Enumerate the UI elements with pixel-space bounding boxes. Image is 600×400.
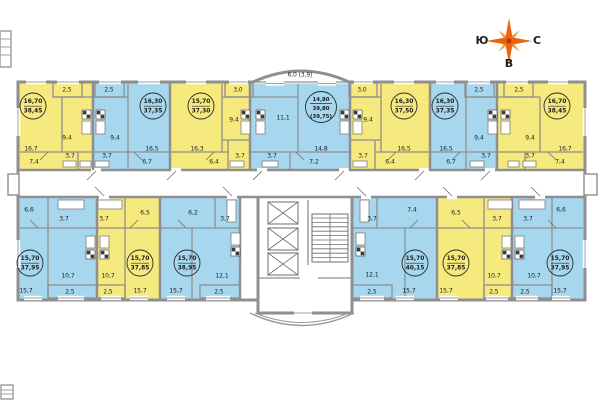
t3-bath-area: 3,7: [235, 153, 245, 160]
summary-top-5-living: 16,30: [395, 99, 414, 105]
floor-plan: Ю С В 16,70 38,45 16,30 37,35 15,70 37,3…: [0, 0, 600, 400]
summary-bottom-3-living: 15,70: [178, 256, 197, 262]
t5-hall-area: 6,4: [385, 159, 395, 166]
t4-balcony-area: 6,0 (3,9): [288, 73, 313, 79]
t6-hall-area: 6,7: [446, 159, 456, 166]
summary-top-1-total: 38,45: [24, 109, 43, 115]
t1-main-area: 16,7: [24, 146, 38, 153]
t1-balcony-area: 2,5: [62, 88, 72, 94]
adjacent-section-top-left: [0, 31, 11, 67]
t3-main-area: 16,3: [190, 146, 204, 153]
t7-main-area: 16,7: [558, 146, 572, 153]
t2-main-area: 16,5: [145, 146, 159, 153]
b1-hall-area: 6,6: [24, 207, 34, 214]
b3-main-area: 15,7: [169, 288, 183, 295]
t1-bath-area: 3,7: [65, 153, 75, 160]
b6-kitchen-area: 10,7: [527, 273, 541, 280]
summary-top-4-alt: (39,75): [310, 114, 332, 120]
summary-top-4-living: 14,80: [312, 97, 329, 103]
b3-balcony-area: 2,5: [214, 290, 224, 296]
t2-bath-area: 3,7: [102, 153, 112, 160]
t7-kitchen-area: 9,4: [525, 135, 535, 142]
summary-bottom-6-total: 37,95: [551, 266, 570, 272]
compass-label-east: В: [505, 57, 513, 70]
summary-bottom-5-living: 15,70: [447, 256, 466, 262]
t3-kitchen-area: 9,4: [229, 117, 239, 124]
apartment-bottom-5[interactable]: [437, 197, 512, 299]
summary-top-3-living: 15,70: [192, 99, 211, 105]
t5-kitchen-area: 9,4: [363, 117, 373, 124]
b1-main-area: 15,7: [19, 288, 33, 295]
t1-hall-area: 7,4: [29, 159, 39, 166]
compass-label-north: С: [533, 34, 541, 47]
b5-bath-area: 3,7: [492, 216, 502, 223]
summary-top-6-living: 16,30: [436, 99, 455, 105]
b4-balcony-area: 2,5: [367, 290, 377, 296]
summary-top-7-total: 38,45: [548, 109, 567, 115]
t2-kitchen-area: 9,4: [110, 135, 120, 142]
summary-bottom-1-total: 37,95: [21, 266, 40, 272]
t4-room-area: 11,1: [276, 115, 290, 122]
t7-balcony-area: 2,5: [514, 88, 524, 94]
b6-hall-area: 6,6: [556, 207, 566, 214]
t6-kitchen-area: 9,4: [474, 135, 484, 142]
summary-bottom-4-living: 15,70: [406, 256, 425, 262]
t4-hall-area: 7,2: [309, 159, 319, 166]
b4-bath-area: 3,7: [367, 216, 377, 223]
b4-main-area: 15,7: [402, 288, 416, 295]
b6-balcony-area: 2,5: [520, 290, 530, 296]
t7-hall-area: 7,4: [555, 159, 565, 166]
summary-bottom-3-total: 38,95: [178, 266, 197, 272]
b3-kitchen-area: 12,1: [215, 273, 229, 280]
b2-kitchen-area: 10,7: [101, 273, 115, 280]
summary-bottom-4-total: 40,15: [406, 266, 425, 272]
t3-balcony-area: 3,0: [233, 88, 243, 94]
b5-kitchen-area: 10,7: [487, 273, 501, 280]
corridor-exit-left: [8, 174, 19, 195]
t4-bath-area: 3,7: [267, 153, 277, 160]
compass-label-south: Ю: [476, 34, 489, 47]
adjacent-section-bottom-left: [1, 385, 13, 399]
t2-balcony-area: 2,5: [104, 88, 114, 94]
summary-top-5-total: 37,50: [395, 109, 414, 115]
t2-hall-area: 6,7: [142, 159, 152, 166]
b4-kitchen-area: 12,1: [365, 272, 379, 279]
t5-balcony-area: 3,0: [357, 88, 367, 94]
t6-balcony-area: 2,5: [474, 88, 484, 94]
t6-main-area: 16,5: [439, 146, 453, 153]
compass-center: [507, 39, 512, 44]
summary-top-2-total: 37,35: [144, 109, 163, 115]
corridor-exit-right: [584, 174, 597, 195]
b4-hall-area: 7,4: [407, 207, 417, 214]
t3-hall-area: 6,4: [209, 159, 219, 166]
b2-main-area: 15,7: [133, 288, 147, 295]
t1-kitchen-area: 9,4: [62, 135, 72, 142]
summary-top-3-total: 37,30: [192, 109, 211, 115]
b3-hall-area: 6,2: [188, 210, 198, 217]
b1-balcony-area: 2,5: [65, 290, 75, 296]
b5-main-area: 15,7: [439, 288, 453, 295]
floor-plan-page: Ю С В 16,70 38,45 16,30 37,35 15,70 37,3…: [0, 0, 600, 400]
b5-hall-area: 6,5: [451, 210, 461, 217]
summary-bottom-6-living: 15,70: [551, 256, 570, 262]
b1-kitchen-area: 10,7: [61, 273, 75, 280]
summary-bottom-5-total: 37,85: [447, 266, 466, 272]
b2-balcony-area: 2,5: [103, 290, 113, 296]
summary-top-7-living: 16,70: [548, 99, 567, 105]
summary-bottom-1-living: 15,70: [21, 256, 40, 262]
summary-top-2-living: 16,30: [144, 99, 163, 105]
summary-top-4-total: 39,80: [312, 106, 329, 112]
summary-bottom-2-living: 15,70: [131, 256, 150, 262]
t5-bath-area: 3,7: [358, 153, 368, 160]
t4-main-area: 14,8: [314, 146, 328, 153]
b3-bath-area: 3,7: [220, 216, 230, 223]
b2-bath-area: 3,7: [99, 216, 109, 223]
b6-bath-area: 3,7: [523, 216, 533, 223]
b6-main-area: 15,7: [553, 288, 567, 295]
t5-main-area: 16,5: [397, 146, 411, 153]
b2-hall-area: 6,5: [140, 210, 150, 217]
summary-top-1-living: 16,70: [24, 99, 43, 105]
summary-top-6-total: 37,35: [436, 109, 455, 115]
summary-bottom-2-total: 37,85: [131, 266, 150, 272]
t7-bath-area: 3,7: [525, 153, 535, 160]
b5-balcony-area: 2,5: [489, 290, 499, 296]
t6-bath-area: 3,7: [481, 153, 491, 160]
b1-bath-area: 3,7: [59, 216, 69, 223]
